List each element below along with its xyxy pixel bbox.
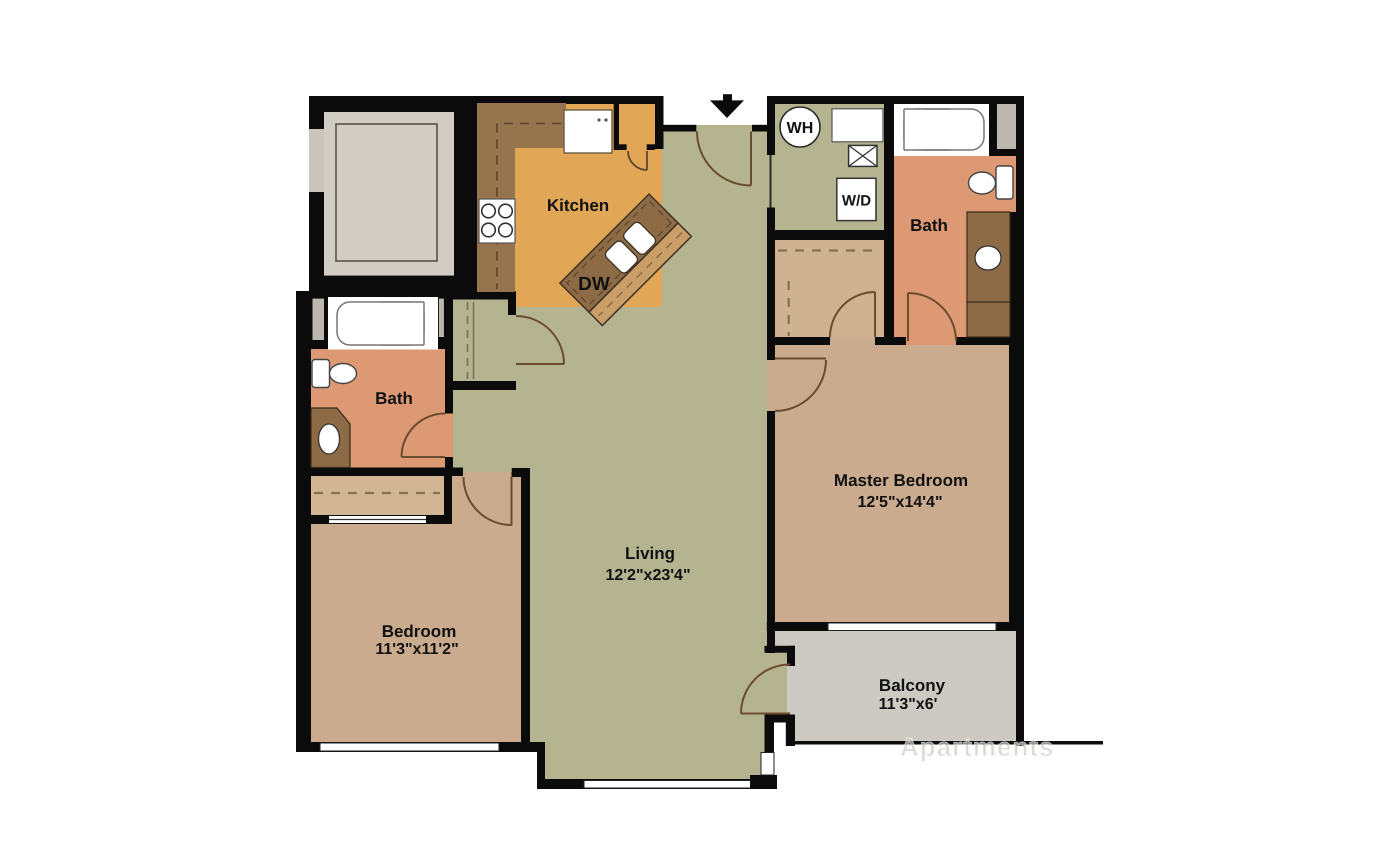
svg-text:12'5"x14'4": 12'5"x14'4" (857, 494, 942, 511)
svg-text:12'2"x23'4": 12'2"x23'4" (605, 567, 690, 584)
svg-text:11'3"x6': 11'3"x6' (879, 696, 938, 713)
svg-text:Kitchen: Kitchen (547, 196, 609, 215)
svg-text:DW: DW (578, 274, 610, 295)
svg-text:Bath: Bath (375, 389, 413, 408)
svg-text:11'3"x11'2": 11'3"x11'2" (375, 641, 458, 658)
svg-text:Apartments: Apartments (900, 732, 1054, 762)
svg-text:Master Bedroom: Master Bedroom (834, 471, 968, 490)
svg-text:Bath: Bath (910, 216, 948, 235)
svg-text:WH: WH (787, 120, 814, 137)
svg-text:Balcony: Balcony (879, 676, 946, 695)
svg-text:W/D: W/D (842, 193, 871, 210)
svg-text:Bedroom: Bedroom (382, 622, 457, 641)
svg-text:Living: Living (625, 544, 675, 563)
